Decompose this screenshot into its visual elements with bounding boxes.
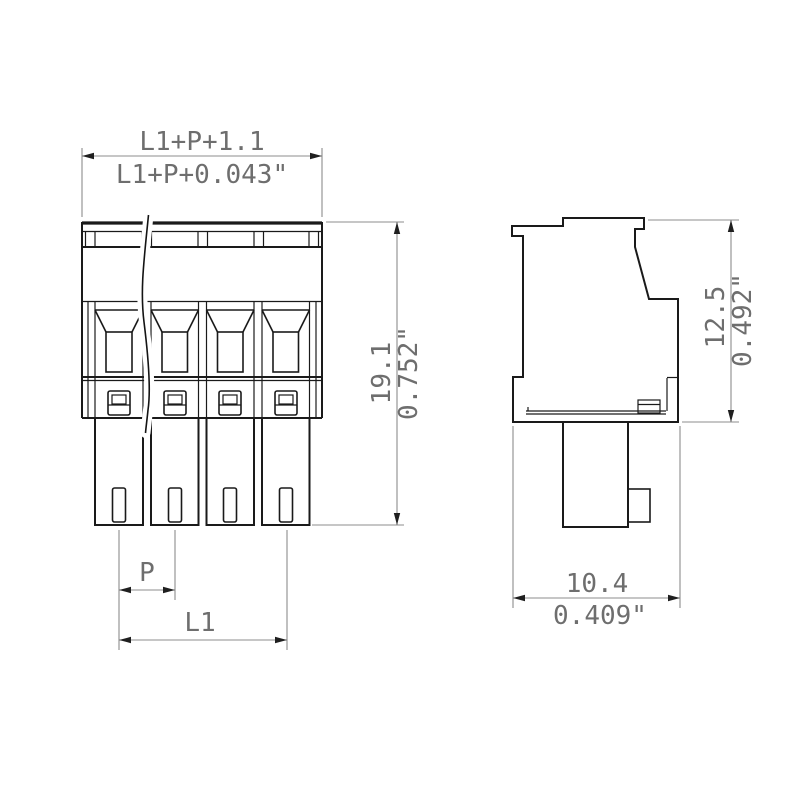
dim-label-side-depth-mm: 10.4 — [566, 569, 629, 599]
technical-drawing-canvas: L1+P+1.1 L1+P+0.043" 19.1 0.752" P L1 12… — [0, 0, 800, 800]
funnel-slant-right — [188, 310, 199, 332]
pole-4 — [262, 310, 310, 525]
wire-entry-opening — [106, 332, 132, 372]
dimension-front-height: 19.1 0.752" — [312, 222, 424, 525]
arrowhead-right — [668, 595, 680, 601]
pin-slot — [280, 488, 293, 522]
dim-label-side-depth-inch: 0.409" — [553, 601, 647, 631]
solder-pin — [151, 418, 199, 525]
solder-pin — [207, 418, 255, 525]
dim-label-pitch: P — [139, 558, 155, 588]
arrowhead-left — [119, 637, 131, 643]
dim-label-total-width-inch: L1+P+0.043" — [116, 160, 288, 190]
dimension-pitch: P — [119, 530, 175, 650]
arrowhead-top — [728, 220, 734, 232]
funnel-slant-left — [151, 310, 162, 332]
arrowhead-bottom — [728, 410, 734, 422]
dim-label-side-height-mm: 12.5 — [701, 286, 731, 349]
dimension-side-height: 12.5 0.492" — [648, 220, 758, 422]
pin-slot — [224, 488, 237, 522]
funnel-slant-left — [95, 310, 106, 332]
funnel-slant-right — [299, 310, 310, 332]
rib-ticks — [86, 232, 319, 248]
arrowhead-bottom — [394, 513, 400, 525]
arrowhead-top — [394, 222, 400, 234]
arrowhead-right — [275, 637, 287, 643]
side-outline — [512, 218, 678, 422]
funnel-slant-left — [262, 310, 273, 332]
solder-pin-side — [563, 422, 628, 527]
arrowhead-right — [310, 153, 322, 159]
front-view — [82, 215, 322, 525]
screw-head — [168, 395, 182, 404]
solder-pin — [262, 418, 310, 525]
dimension-total-width: L1+P+1.1 L1+P+0.043" — [82, 127, 322, 217]
dim-label-front-height-inch: 0.752" — [394, 326, 424, 420]
connector-body-front — [82, 222, 322, 418]
arrowhead-left — [119, 587, 131, 593]
pin-slot — [113, 488, 126, 522]
dim-label-front-height-mm: 19.1 — [367, 342, 397, 405]
pole-separator-walls — [88, 302, 316, 418]
pole-2 — [151, 310, 199, 525]
arrowhead-right — [163, 587, 175, 593]
screw-head — [223, 395, 237, 404]
pole-1 — [95, 310, 143, 525]
pin-side-lug — [628, 489, 650, 522]
side-interior-details — [526, 378, 678, 415]
wire-entry-opening — [162, 332, 188, 372]
wire-entry-opening — [273, 332, 299, 372]
dim-label-side-height-inch: 0.492" — [728, 273, 758, 367]
side-view — [512, 218, 678, 527]
arrowhead-left — [82, 153, 94, 159]
pin-slot — [169, 488, 182, 522]
wire-entry-opening — [218, 332, 244, 372]
solder-pin — [95, 418, 143, 525]
dim-label-length: L1 — [184, 608, 215, 638]
screw-head — [279, 395, 293, 404]
funnel-slant-left — [207, 310, 218, 332]
screw-head — [112, 395, 126, 404]
arrowhead-left — [513, 595, 525, 601]
funnel-slant-right — [243, 310, 254, 332]
dimension-side-depth: 10.4 0.409" — [513, 426, 680, 631]
pole-3 — [207, 310, 255, 525]
dim-label-total-width-mm: L1+P+1.1 — [139, 127, 264, 157]
